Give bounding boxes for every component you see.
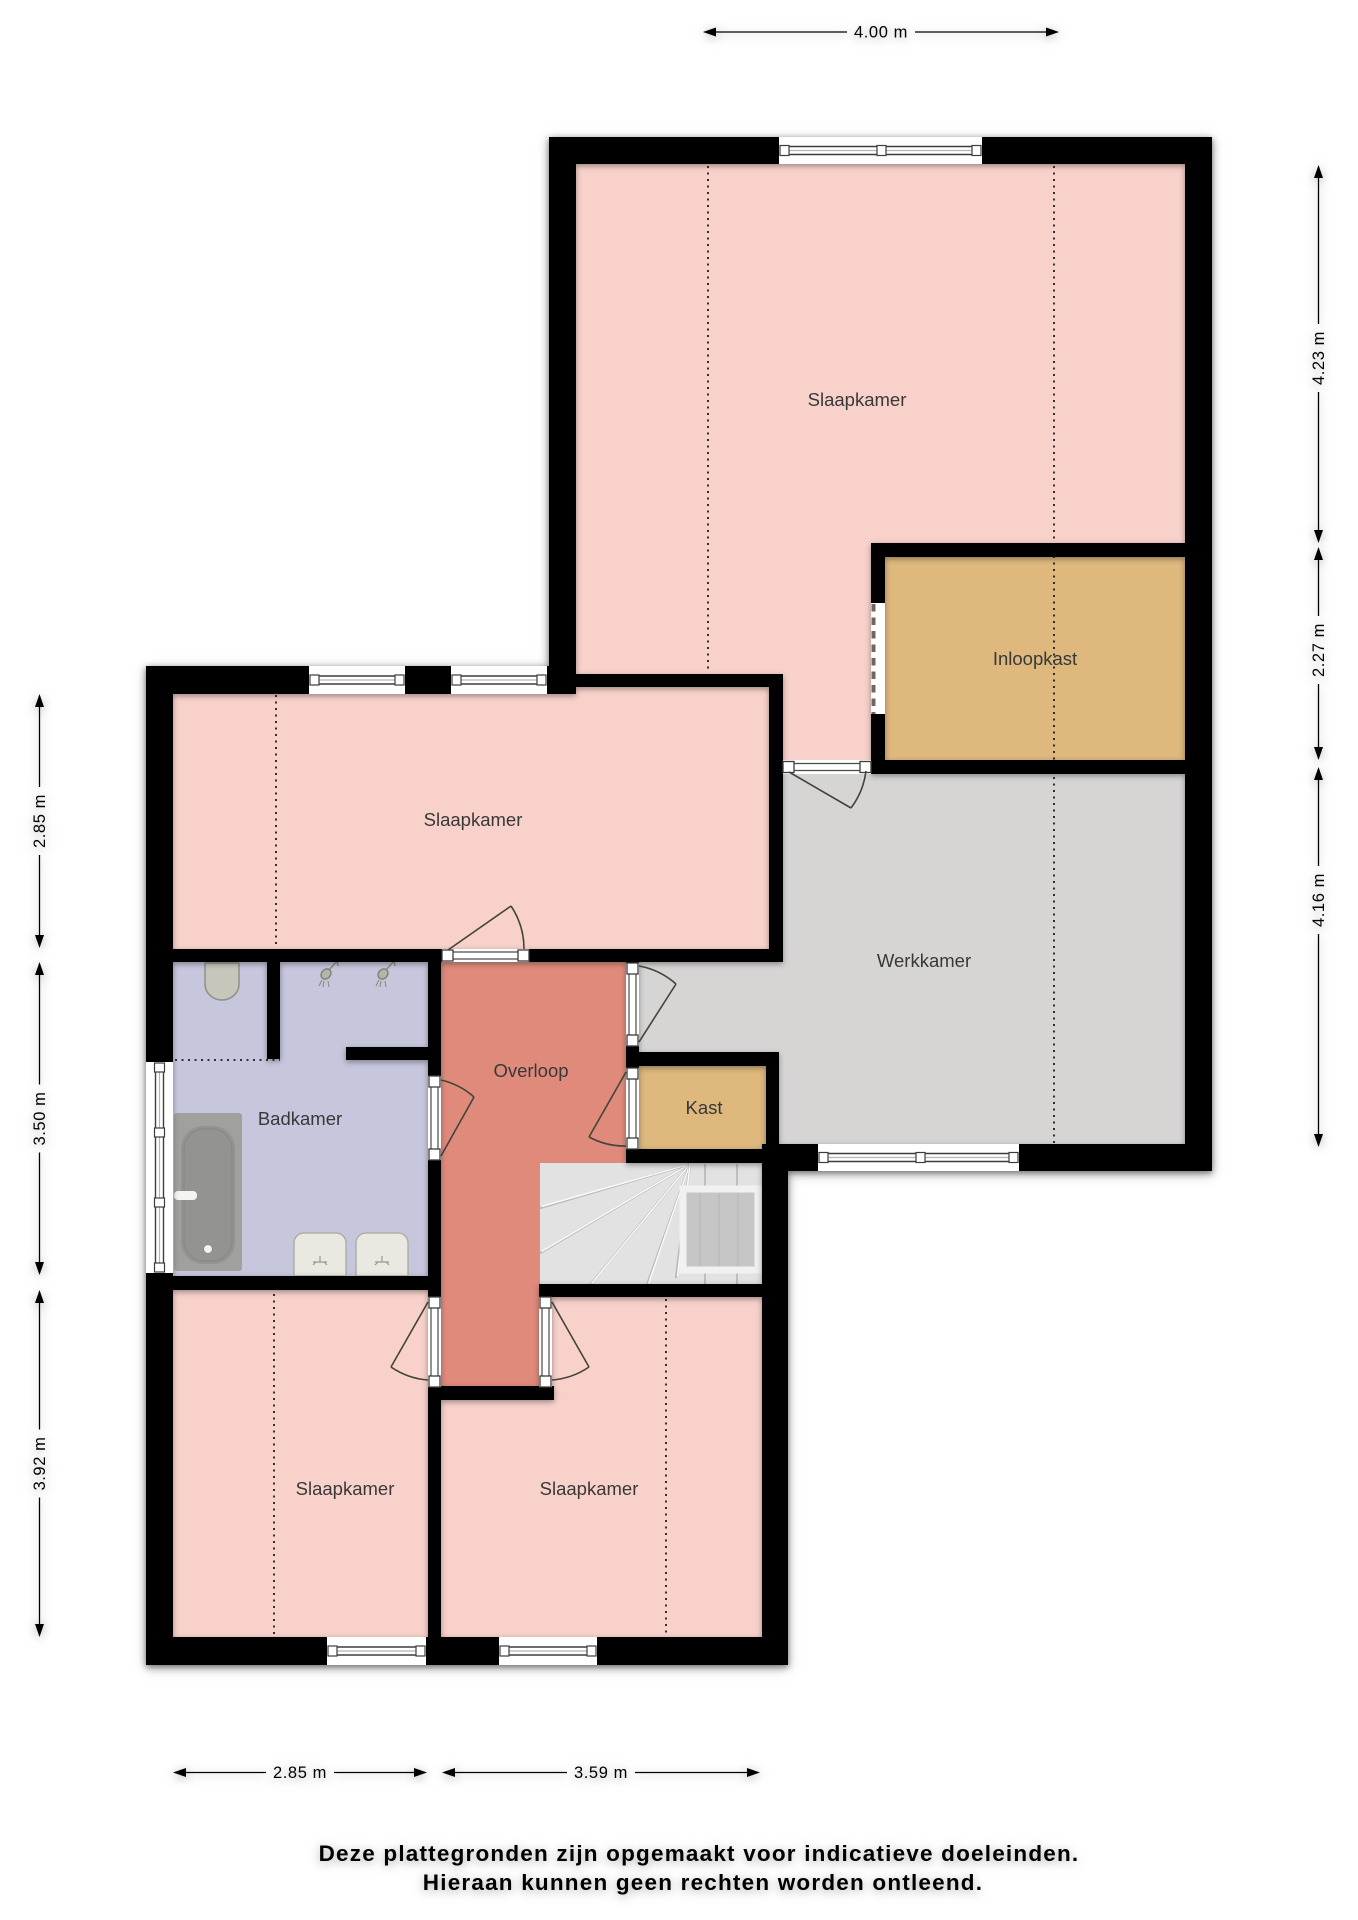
svg-text:3.50 m: 3.50 m [31,1091,49,1145]
svg-text:2.27 m: 2.27 m [1310,623,1328,677]
svg-text:Werkkamer: Werkkamer [877,950,971,971]
svg-text:Overloop: Overloop [493,1060,568,1081]
svg-text:Kast: Kast [685,1097,722,1118]
svg-text:3.92 m: 3.92 m [31,1436,49,1490]
svg-text:Slaapkamer: Slaapkamer [424,809,523,830]
svg-text:Slaapkamer: Slaapkamer [540,1478,639,1499]
svg-text:Inloopkast: Inloopkast [993,648,1077,669]
svg-text:Slaapkamer: Slaapkamer [808,389,907,410]
svg-text:Hieraan kunnen geen rechten wo: Hieraan kunnen geen rechten worden ontle… [423,1870,983,1895]
svg-text:2.85 m: 2.85 m [273,1764,327,1782]
svg-text:Slaapkamer: Slaapkamer [296,1478,395,1499]
svg-text:4.16 m: 4.16 m [1310,873,1328,927]
svg-text:Deze plattegronden zijn opgema: Deze plattegronden zijn opgemaakt voor i… [319,1841,1080,1866]
svg-text:Badkamer: Badkamer [258,1108,342,1129]
svg-text:3.59 m: 3.59 m [574,1764,628,1782]
svg-text:2.85 m: 2.85 m [31,794,49,848]
svg-text:4.00 m: 4.00 m [854,24,908,42]
svg-text:4.23 m: 4.23 m [1310,331,1328,385]
